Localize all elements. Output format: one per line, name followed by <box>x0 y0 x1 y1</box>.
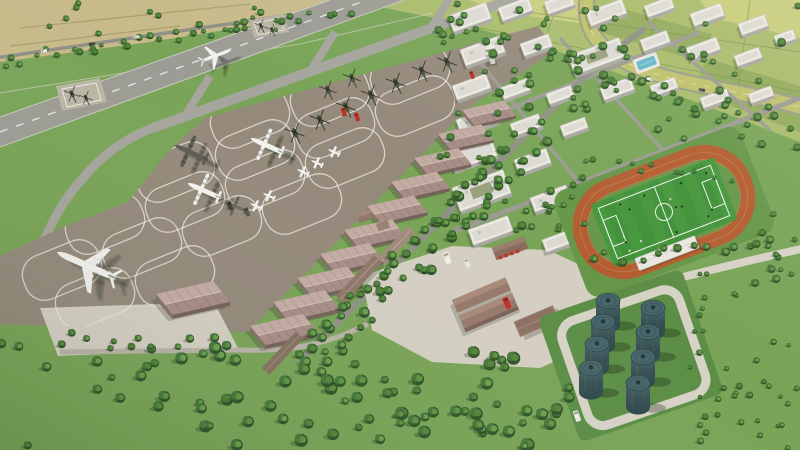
render-viewport <box>0 0 800 450</box>
airbase-render <box>0 0 800 450</box>
